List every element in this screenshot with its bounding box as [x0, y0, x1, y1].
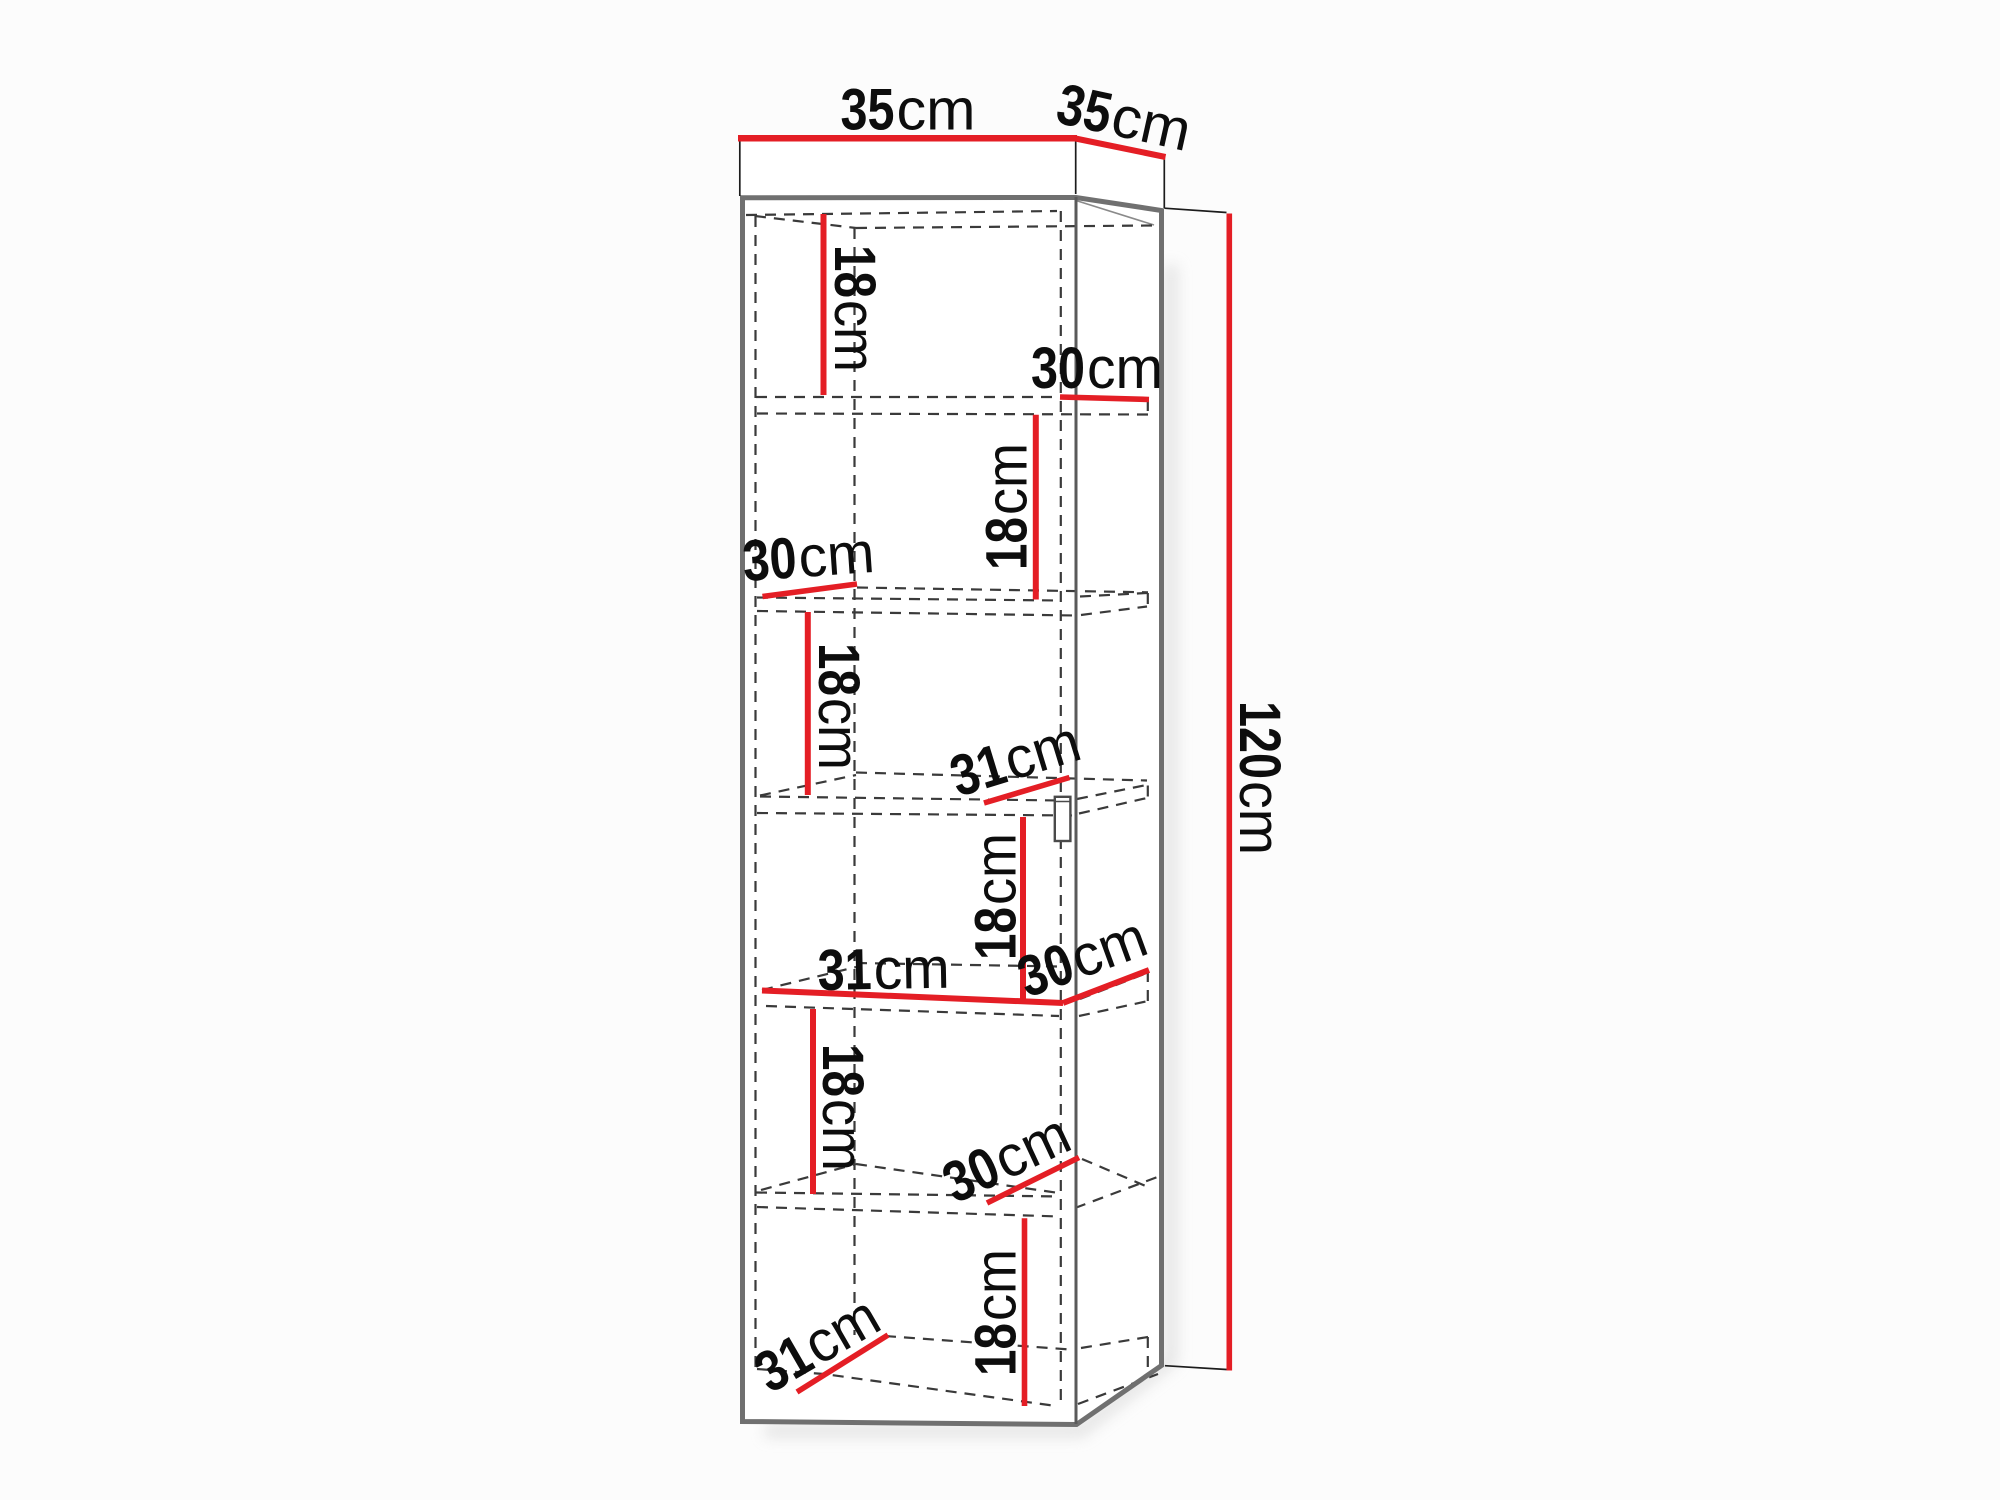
svg-text:18: 18	[975, 517, 1040, 570]
svg-text:cm: cm	[873, 936, 950, 1002]
svg-text:18: 18	[806, 643, 871, 696]
svg-text:30: 30	[1031, 336, 1085, 401]
svg-text:cm: cm	[806, 698, 871, 770]
svg-text:120: 120	[1227, 701, 1292, 779]
svg-text:18: 18	[822, 245, 887, 298]
svg-text:18: 18	[964, 1323, 1029, 1376]
svg-text:cm: cm	[810, 1099, 875, 1171]
svg-text:cm: cm	[1087, 336, 1163, 401]
svg-text:cm: cm	[964, 1249, 1029, 1321]
svg-text:31: 31	[817, 937, 872, 1003]
svg-text:18: 18	[810, 1044, 875, 1097]
svg-text:35: 35	[841, 78, 895, 143]
svg-text:30: 30	[740, 525, 798, 594]
svg-text:cm: cm	[897, 78, 976, 143]
svg-text:cm: cm	[1227, 781, 1292, 855]
svg-text:cm: cm	[796, 520, 876, 590]
svg-text:cm: cm	[964, 833, 1029, 905]
svg-text:cm: cm	[975, 443, 1040, 515]
svg-text:cm: cm	[822, 300, 887, 372]
